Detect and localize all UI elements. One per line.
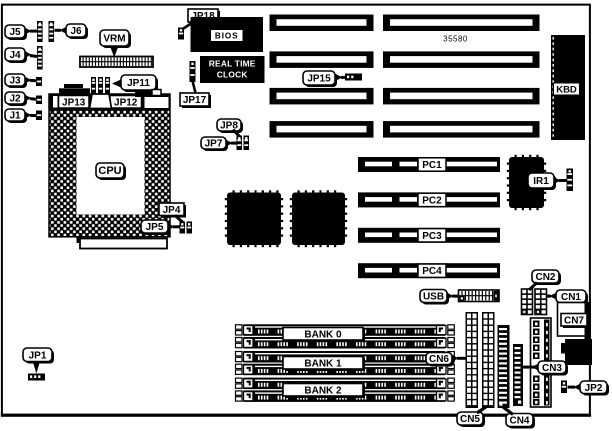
svg-text:JP8: JP8 — [220, 121, 238, 132]
svg-text:BIOS: BIOS — [215, 32, 239, 41]
svg-text:VRM: VRM — [103, 34, 125, 45]
svg-text:CN6: CN6 — [429, 354, 449, 365]
svg-text:CN4: CN4 — [509, 416, 529, 427]
svg-text:BANK 1: BANK 1 — [304, 358, 342, 369]
svg-text:CLOCK: CLOCK — [217, 70, 248, 80]
svg-text:J1: J1 — [9, 111, 21, 122]
svg-text:CPU: CPU — [98, 165, 121, 177]
svg-text:JP7: JP7 — [205, 139, 223, 150]
svg-text:35580: 35580 — [443, 35, 468, 44]
svg-text:JP5: JP5 — [146, 222, 164, 233]
svg-text:JP15: JP15 — [307, 74, 331, 85]
svg-text:PC4: PC4 — [422, 266, 442, 277]
svg-text:JP12: JP12 — [114, 97, 138, 108]
svg-text:JP13: JP13 — [62, 97, 86, 108]
svg-text:J5: J5 — [9, 27, 21, 38]
svg-text:CN2: CN2 — [535, 272, 555, 283]
svg-text:J3: J3 — [9, 76, 21, 87]
svg-text:JP11: JP11 — [127, 78, 150, 89]
svg-text:JP1: JP1 — [29, 350, 47, 361]
svg-text:CN3: CN3 — [542, 363, 562, 374]
svg-text:J4: J4 — [9, 50, 21, 61]
svg-text:CN7: CN7 — [564, 315, 584, 326]
svg-text:BANK 0: BANK 0 — [304, 329, 342, 340]
svg-text:REAL TIME: REAL TIME — [209, 59, 256, 69]
svg-text:PC1: PC1 — [422, 160, 442, 171]
svg-text:J6: J6 — [70, 26, 82, 37]
svg-text:JP2: JP2 — [585, 383, 603, 394]
svg-text:BANK 2: BANK 2 — [304, 385, 342, 396]
svg-text:KBD: KBD — [556, 84, 577, 95]
svg-text:PC2: PC2 — [422, 195, 442, 206]
svg-text:CN1: CN1 — [561, 292, 581, 303]
svg-text:USB: USB — [423, 292, 444, 303]
svg-text:IR1: IR1 — [533, 176, 549, 187]
svg-text:PC3: PC3 — [422, 231, 442, 242]
svg-text:J2: J2 — [9, 94, 21, 105]
svg-text:JP4: JP4 — [163, 205, 181, 216]
svg-text:JP17: JP17 — [183, 95, 207, 106]
svg-text:CN5: CN5 — [460, 414, 480, 425]
